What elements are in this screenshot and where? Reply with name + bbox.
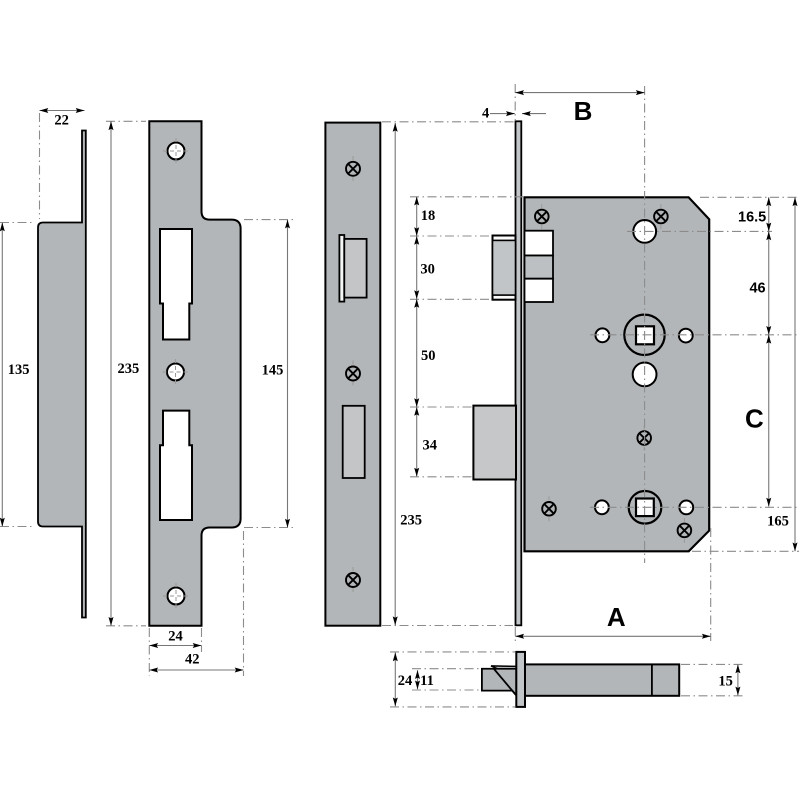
svg-text:C: C xyxy=(745,403,764,433)
svg-text:4: 4 xyxy=(482,105,489,121)
svg-text:24: 24 xyxy=(398,673,413,689)
svg-text:24: 24 xyxy=(168,629,183,645)
svg-text:235: 235 xyxy=(400,512,422,528)
svg-text:50: 50 xyxy=(421,348,436,364)
svg-text:46: 46 xyxy=(749,281,765,297)
svg-text:165: 165 xyxy=(767,513,789,529)
svg-text:15: 15 xyxy=(718,673,733,689)
svg-text:A: A xyxy=(607,602,626,632)
svg-text:30: 30 xyxy=(420,262,435,278)
svg-text:235: 235 xyxy=(118,361,140,377)
svg-text:11: 11 xyxy=(420,673,434,689)
svg-text:16.5: 16.5 xyxy=(738,209,766,225)
svg-text:42: 42 xyxy=(185,652,200,668)
svg-text:145: 145 xyxy=(262,363,284,379)
svg-text:18: 18 xyxy=(421,208,436,224)
svg-text:135: 135 xyxy=(8,362,30,378)
svg-text:B: B xyxy=(574,96,593,126)
svg-text:22: 22 xyxy=(54,112,69,128)
svg-text:34: 34 xyxy=(423,437,438,453)
